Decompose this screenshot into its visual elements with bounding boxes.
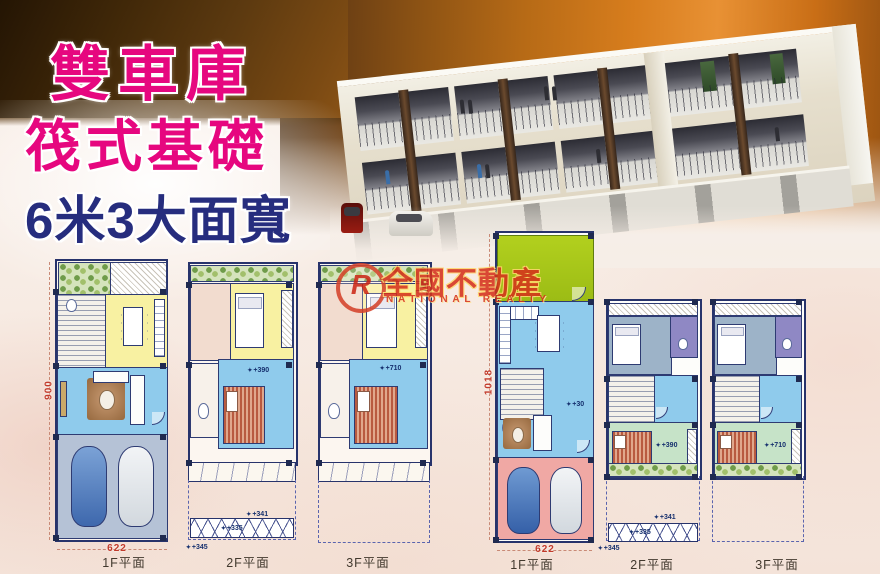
balcony-opening — [355, 92, 405, 151]
caption-left-1f: 1F平面 — [102, 552, 146, 571]
rail-strip — [608, 523, 698, 542]
wall-pillars — [53, 289, 59, 295]
balcony-opening-green-glass — [665, 56, 735, 117]
bed — [235, 293, 265, 348]
realty-logo-icon: R — [336, 263, 386, 313]
balcony-opening-green-glass — [736, 49, 802, 109]
bed — [717, 324, 746, 365]
balcony-opening — [561, 136, 610, 193]
dim-left-height: 900 — [44, 380, 55, 400]
level-marker-icon: ✦ — [598, 545, 603, 552]
chairs — [559, 317, 564, 348]
kitchen-counter-side — [499, 306, 511, 364]
sofa-back — [93, 371, 129, 383]
wall-pillars — [604, 299, 610, 305]
toilet — [198, 403, 210, 419]
roof-outline-dashed — [318, 480, 430, 543]
headline-line2: 筏式基礎 — [25, 102, 269, 183]
wall-pillars — [186, 282, 192, 288]
level-marker-icon: ✦ — [629, 529, 634, 536]
chairs — [143, 309, 148, 343]
kitchen-counter — [154, 299, 165, 358]
level-value: +390 — [253, 367, 269, 374]
headline-line3: 6米3大面寬 — [25, 179, 292, 253]
toilet — [66, 299, 77, 312]
bathroom-purple — [670, 316, 698, 357]
level-annotation: ✦+341 — [654, 514, 676, 521]
bed — [612, 324, 642, 365]
level-marker-icon: ✦ — [186, 544, 191, 551]
bathroom-purple — [775, 316, 802, 357]
dining-table — [123, 307, 143, 346]
entry-porch — [110, 262, 166, 295]
car-white-plan — [550, 467, 582, 535]
bathroom — [320, 363, 351, 438]
bed-red — [354, 386, 398, 444]
balcony-strip — [714, 303, 802, 316]
stairwell — [608, 375, 656, 424]
level-value: +345 — [192, 544, 208, 551]
toilet — [678, 338, 688, 350]
level-value: +30 — [572, 401, 584, 408]
terrace-planter — [608, 463, 698, 477]
stairs — [500, 368, 544, 420]
living-rug — [87, 378, 125, 420]
real-estate-flyer: 雙車庫 筏式基礎 6米3大面寬 ✦+390 — [0, 0, 880, 574]
level-value: +710 — [386, 365, 402, 372]
bathroom — [190, 363, 220, 438]
level-marker-icon: ✦ — [221, 525, 226, 532]
level-marker-icon: ✦ — [566, 401, 571, 408]
level-value: +341 — [252, 511, 268, 518]
white-car-render — [389, 211, 433, 236]
level-annotation: ✦+30 — [566, 401, 584, 408]
balcony-opening — [672, 122, 741, 181]
stairwell — [190, 283, 232, 361]
level-annotation: ✦+341 — [246, 511, 268, 518]
level-annotation: ✦+710 — [764, 442, 786, 449]
stairwell — [714, 375, 761, 424]
level-annotation: ✦+710 — [380, 365, 402, 372]
chairs — [531, 317, 536, 348]
bed-red — [223, 386, 265, 444]
level-marker-icon: ✦ — [764, 442, 769, 449]
level-annotation: ✦+335 — [629, 529, 651, 536]
floorplan-left-2f: ✦+390 ✦+341 ✦+335 ✦+345 — [188, 262, 294, 543]
dim-line-vertical — [49, 262, 50, 540]
balcony-opening — [744, 114, 809, 172]
floorplan-left-1f — [55, 259, 168, 542]
level-value: +335 — [227, 525, 243, 532]
garden-strip — [58, 262, 112, 295]
caption-right-2f: 2F平面 — [630, 554, 674, 573]
sofa — [533, 415, 553, 451]
level-annotation: ✦+390 — [656, 442, 678, 449]
level-annotation: ✦+345 — [186, 544, 208, 551]
dim-right-height: 1018 — [484, 369, 495, 395]
terrace — [318, 462, 430, 482]
dining-table — [537, 315, 561, 351]
watermark-brand-en: NATIONAL REALTY — [386, 294, 551, 305]
sofa — [130, 375, 146, 425]
level-annotation: ✦+345 — [598, 545, 620, 552]
wall-pillars — [316, 282, 322, 288]
level-value: +335 — [635, 529, 651, 536]
terrace-planter — [714, 463, 802, 477]
balcony-strip — [608, 303, 698, 316]
level-value: +390 — [662, 442, 678, 449]
car-white-plan — [118, 446, 154, 527]
level-annotation: ✦+335 — [221, 525, 243, 532]
terrace — [188, 462, 296, 482]
chairs — [117, 309, 122, 343]
balcony-planter — [190, 265, 294, 282]
wardrobe — [281, 290, 293, 348]
toilet — [328, 403, 340, 419]
floorplan-right-3f: ✦+710 — [712, 299, 802, 545]
living-rug — [503, 418, 531, 449]
balcony-opening — [553, 71, 603, 130]
roof-outline-dashed — [712, 476, 804, 542]
red-car-render — [341, 203, 363, 233]
caption-right-3f: 3F平面 — [755, 554, 799, 573]
level-value: +345 — [604, 545, 620, 552]
level-marker-icon: ✦ — [380, 365, 385, 372]
level-marker-icon: ✦ — [246, 511, 251, 518]
headline-line1: 雙車庫 — [50, 26, 254, 113]
floorplan-right-2f: ✦+390 ✦+341 ✦+335 ✦+345 — [606, 299, 698, 545]
caption-left-3f: 3F平面 — [346, 552, 390, 571]
car-blue-plan — [71, 446, 107, 527]
level-annotation: ✦+390 — [247, 367, 269, 374]
car-blue-plan — [507, 467, 540, 535]
caption-left-2f: 2F平面 — [226, 552, 270, 571]
wall-pillars — [493, 233, 499, 239]
wall-pillars — [710, 299, 716, 305]
tv-cabinet — [60, 381, 68, 417]
caption-right-1f: 1F平面 — [510, 554, 554, 573]
level-value: +341 — [660, 514, 676, 521]
level-value: +710 — [770, 442, 786, 449]
level-marker-icon: ✦ — [654, 514, 659, 521]
stair-hall — [57, 294, 106, 368]
level-marker-icon: ✦ — [656, 442, 661, 449]
level-marker-icon: ✦ — [247, 367, 252, 374]
